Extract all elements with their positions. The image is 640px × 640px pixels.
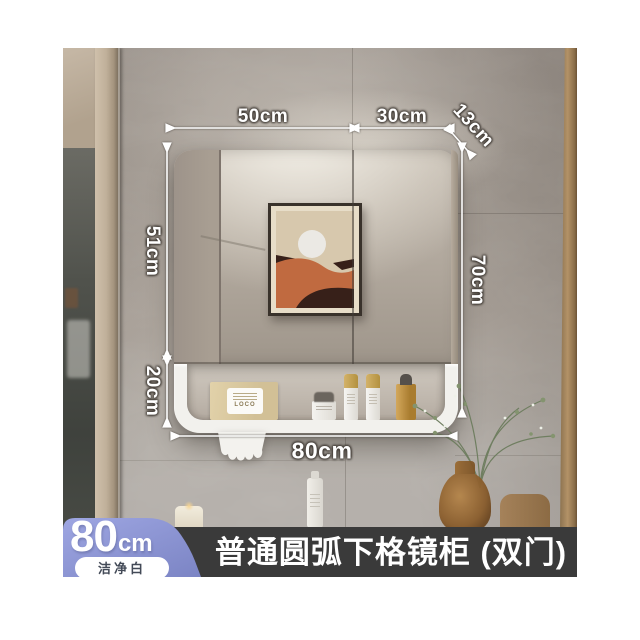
shower-shelf-item bbox=[65, 288, 78, 308]
badge-size-number: 80 bbox=[70, 512, 117, 562]
flower-vase bbox=[439, 472, 491, 532]
lotion-bottle bbox=[344, 374, 358, 420]
badge-size: 80cm bbox=[70, 512, 153, 562]
pleated-cup bbox=[213, 432, 271, 464]
badge-size-unit: cm bbox=[118, 530, 153, 558]
bathroom-photo: LOCO bbox=[63, 48, 577, 577]
mirror-door-seam bbox=[352, 150, 354, 364]
framed-artwork bbox=[268, 203, 362, 316]
tissue-box-label: LOCO bbox=[227, 388, 263, 414]
tile-grout-line bbox=[352, 48, 353, 152]
tissue-box: LOCO bbox=[210, 382, 278, 420]
tile-grout-line bbox=[345, 435, 346, 527]
lotion-bottle bbox=[366, 374, 380, 420]
mirror-reflection-door bbox=[174, 150, 221, 364]
shower-wall-top bbox=[63, 48, 95, 152]
shower-door-frame bbox=[95, 48, 120, 529]
product-title: 普通圆弧下格镜柜 (双门) bbox=[211, 527, 571, 577]
size-badge: 80cm 洁净白 bbox=[63, 514, 213, 577]
cabinet-side-panel bbox=[451, 150, 458, 364]
product-image: LOCO bbox=[0, 0, 640, 640]
soap-dispenser bbox=[307, 478, 323, 528]
badge-finish-pill: 洁净白 bbox=[75, 557, 169, 577]
mirror-doors bbox=[174, 150, 458, 364]
cosmetic-jar bbox=[312, 401, 336, 420]
towel bbox=[67, 320, 90, 378]
tile-grout-line bbox=[455, 213, 577, 214]
plant-sprigs bbox=[385, 378, 575, 488]
